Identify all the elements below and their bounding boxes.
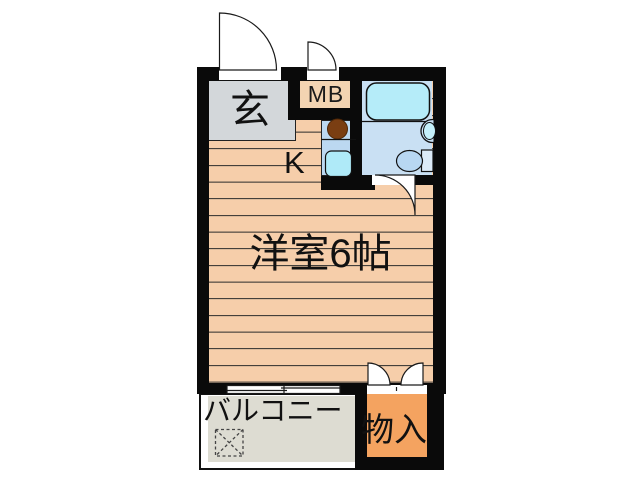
room-bathroom: [362, 81, 432, 175]
door-opening-entrance: [219, 67, 281, 81]
door-opening-bathroom: [372, 175, 415, 185]
wall-kitchen-bath-divider: [350, 81, 362, 185]
balcony-label: バルコニー: [203, 397, 342, 425]
genkan-label: 玄: [230, 90, 270, 130]
storage-label: 物入: [361, 413, 427, 446]
door-opening-storage: [367, 385, 427, 394]
window-opening-balcony: [227, 385, 340, 394]
mb-door-arc: [308, 42, 336, 70]
wall-right: [433, 67, 446, 393]
wall-left: [197, 67, 209, 393]
kitchen-label: K: [284, 147, 305, 178]
wall-storage-bottom: [355, 457, 444, 470]
door-opening-meter-box: [307, 67, 339, 81]
main-room-label: 洋室6帖: [208, 234, 433, 274]
floor-plan-canvas: MB: [0, 0, 638, 480]
meter-box-label: MB: [308, 81, 345, 108]
entrance-door-arc: [220, 13, 277, 70]
room-meter-box: MB: [300, 80, 352, 108]
